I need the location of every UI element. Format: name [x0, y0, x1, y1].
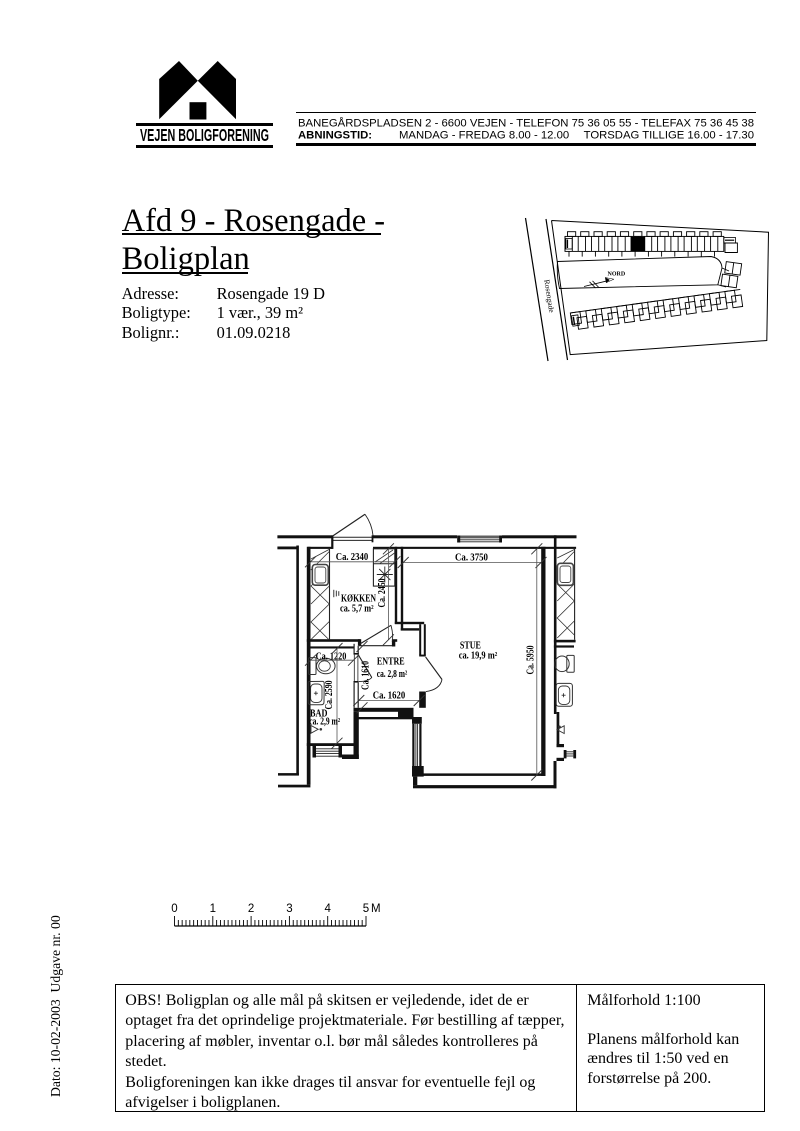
svg-text:4: 4 — [324, 903, 331, 915]
svg-text:Ca. 3750: Ca. 3750 — [455, 553, 488, 564]
svg-text:Ca. 2590: Ca. 2590 — [324, 681, 335, 710]
svg-text:NORD: NORD — [608, 272, 626, 278]
svg-text:2: 2 — [248, 903, 254, 915]
svg-text:1: 1 — [210, 903, 216, 915]
svg-text:MANDAG - FREDAG 8.00 - 12.00: MANDAG - FREDAG 8.00 - 12.00 — [399, 130, 569, 142]
svg-text:BANEGÅRDSPLADSEN 2 - 6600 VEJE: BANEGÅRDSPLADSEN 2 - 6600 VEJEN - TELEFO… — [298, 117, 754, 130]
svg-text:Ca. 5950: Ca. 5950 — [525, 646, 536, 675]
svg-text:ca. 19,9 m²: ca. 19,9 m² — [459, 650, 498, 661]
svg-text:Ca. 2340: Ca. 2340 — [336, 552, 368, 563]
svg-text:5: 5 — [363, 903, 369, 915]
svg-text:ca. 2,9 m²: ca. 2,9 m² — [309, 716, 340, 727]
svg-text:Ca. 1620: Ca. 1620 — [373, 690, 405, 701]
svg-text:0: 0 — [171, 903, 177, 915]
svg-text:Ca. 1220: Ca. 1220 — [316, 651, 347, 662]
svg-text:M: M — [371, 903, 381, 915]
svg-text:VEJEN BOLIGFORENING: VEJEN BOLIGFORENING — [140, 126, 269, 145]
svg-text:3: 3 — [286, 903, 292, 915]
svg-text:ABNINGSTID:: ABNINGSTID: — [298, 130, 372, 142]
svg-text:ca. 5,7 m²: ca. 5,7 m² — [340, 604, 374, 615]
svg-text:ca. 2,8 m²: ca. 2,8 m² — [377, 669, 408, 680]
svg-text:Ca. 2450: Ca. 2450 — [377, 579, 388, 608]
svg-text:Rosengade: Rosengade — [542, 279, 556, 314]
svg-text:Ca. 1610: Ca. 1610 — [361, 661, 372, 690]
svg-text:ENTRE: ENTRE — [377, 656, 405, 667]
svg-text:TORSDAG TILLIGE 16.00 - 17.30: TORSDAG TILLIGE 16.00 - 17.30 — [584, 130, 754, 142]
